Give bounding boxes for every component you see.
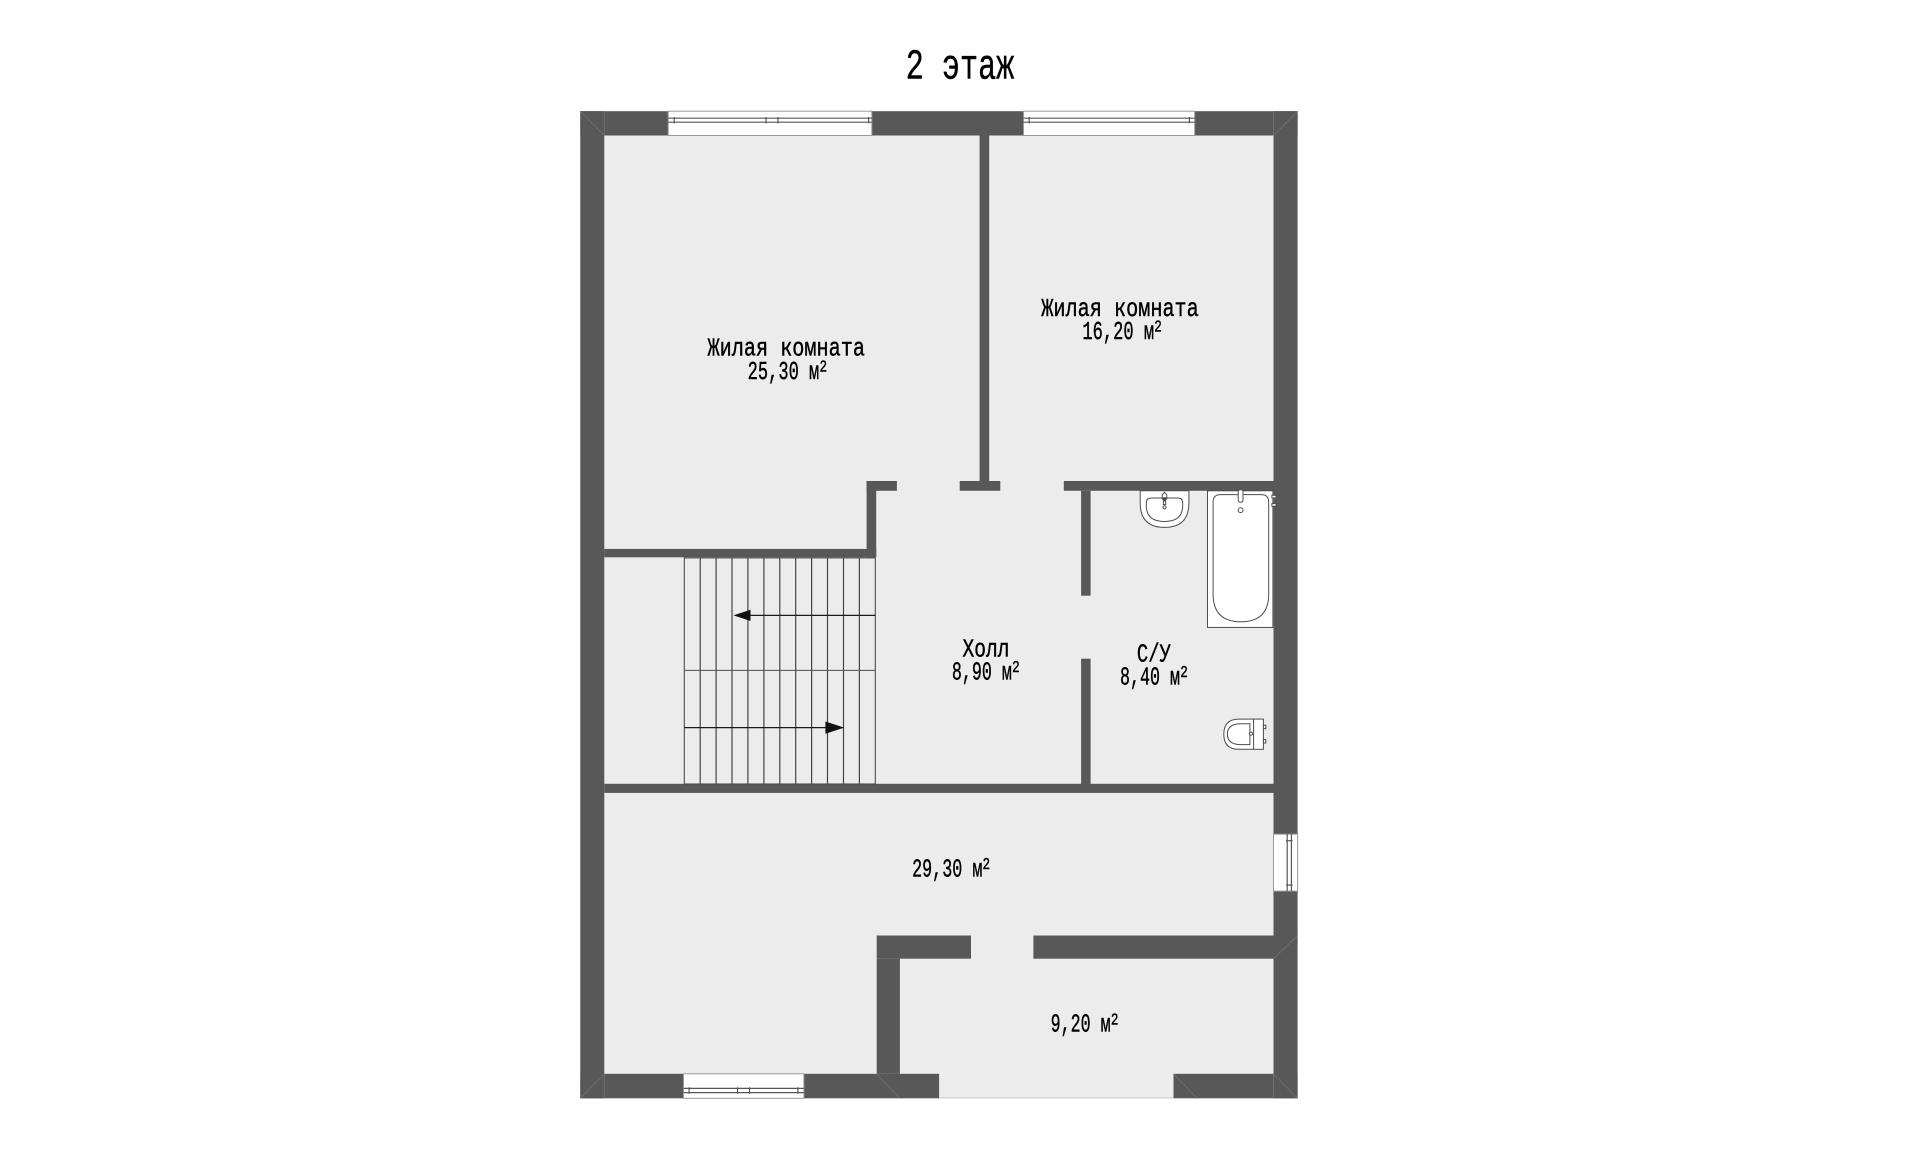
- svg-text:2: 2: [1180, 663, 1188, 682]
- svg-text:9,20 м: 9,20 м: [1051, 1010, 1111, 1040]
- svg-text:8,40 м: 8,40 м: [1120, 662, 1180, 692]
- svg-text:2: 2: [1154, 318, 1162, 337]
- svg-text:2: 2: [1012, 658, 1020, 677]
- svg-text:2: 2: [1111, 1010, 1119, 1029]
- svg-text:16,20 м: 16,20 м: [1082, 317, 1154, 347]
- svg-text:2: 2: [820, 358, 828, 377]
- svg-text:8,90 м: 8,90 м: [952, 657, 1012, 687]
- svg-text:2: 2: [983, 855, 991, 874]
- svg-text:29,30 м: 29,30 м: [912, 854, 982, 884]
- svg-text:2 этаж: 2 этаж: [906, 43, 1015, 92]
- svg-text:25,30 м: 25,30 м: [748, 357, 820, 387]
